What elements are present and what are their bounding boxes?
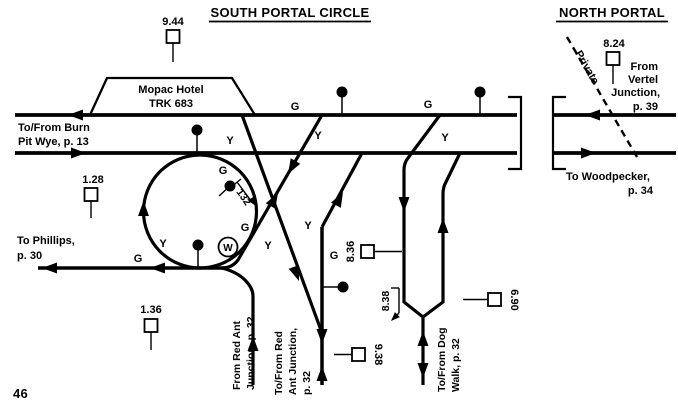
signal-dot-icon bbox=[225, 181, 236, 192]
milepost-square-icon bbox=[352, 348, 365, 361]
milepost-markers: 9.44 1.28 1.36 8.24 8.36 9.38 6.90 8.38 bbox=[82, 16, 625, 365]
flow-arrow-north bbox=[418, 331, 429, 346]
aspect-g-label: G bbox=[330, 250, 339, 262]
flow-arrow-east bbox=[71, 148, 86, 159]
aspect-y-label: Y bbox=[314, 130, 322, 142]
dog-walk-loop-east bbox=[423, 153, 460, 317]
page-number: 46 bbox=[13, 386, 28, 401]
aspect-y-label: Y bbox=[264, 240, 272, 252]
aspect-y-label: Y bbox=[304, 220, 312, 232]
flow-arrow-south bbox=[418, 363, 429, 378]
dog-walk-label: To/From DogWalk, p. 32 bbox=[436, 327, 462, 392]
milepost-square-icon bbox=[85, 188, 98, 201]
signal-dot-icon bbox=[337, 87, 348, 98]
hotel-name-label: Mopac Hotel bbox=[138, 84, 203, 96]
signal-dot-icon bbox=[193, 240, 204, 251]
milepost-label: 8.38 bbox=[380, 291, 392, 312]
private-track-label: Private bbox=[572, 49, 601, 87]
track-end-bracket-south bbox=[508, 97, 521, 169]
milepost-square-icon bbox=[361, 245, 374, 258]
aspect-g-label: G bbox=[424, 99, 433, 111]
aspect-labels: G G G G G G Y Y Y Y Y Y bbox=[134, 99, 450, 265]
milepost-square-icon bbox=[167, 30, 180, 43]
vertel-label-line2: Vertel bbox=[628, 74, 658, 86]
aspect-g-label: G bbox=[241, 222, 250, 234]
flow-arrow-west bbox=[42, 263, 57, 274]
dog-walk-loop-west bbox=[404, 115, 440, 317]
north-portal-title: NORTH PORTAL bbox=[559, 5, 665, 20]
milepost-square-icon bbox=[145, 319, 158, 332]
flow-arrow-west bbox=[585, 110, 600, 121]
milepost-label: 9.44 bbox=[162, 16, 184, 28]
vertel-label-line1: From bbox=[631, 61, 659, 73]
crossover-from-main bbox=[322, 153, 362, 227]
milepost-label: 9.38 bbox=[372, 344, 384, 365]
aspect-y-label: Y bbox=[441, 132, 449, 144]
milepost-square-icon bbox=[488, 293, 501, 306]
flow-arrow-west bbox=[68, 110, 83, 121]
hotel-track-label: TRK 683 bbox=[149, 98, 193, 110]
aspect-g-label: G bbox=[291, 101, 300, 113]
signal-dot-icon bbox=[475, 87, 486, 98]
track-chart-page: SOUTH PORTAL CIRCLE NORTH PORTAL bbox=[0, 0, 678, 411]
burn-pit-label-line1: To/From Burn bbox=[18, 122, 90, 134]
signal-dot-icon bbox=[338, 282, 349, 293]
vertel-label-line3: Junction, bbox=[611, 87, 660, 99]
south-portal-title: SOUTH PORTAL CIRCLE bbox=[210, 5, 369, 20]
flow-arrow-north bbox=[438, 218, 449, 233]
milepost-label: 8.36 bbox=[345, 241, 357, 262]
milepost-square-icon bbox=[607, 52, 620, 65]
burn-pit-label-line2: Pit Wye, p. 13 bbox=[18, 136, 89, 148]
aspect-y-label: Y bbox=[226, 135, 234, 147]
flow-arrow-east bbox=[581, 148, 596, 159]
aspect-g-label: G bbox=[219, 165, 228, 177]
balloon-loop-track bbox=[144, 155, 257, 268]
flow-arrow-south bbox=[399, 197, 410, 212]
flow-arrow-diag bbox=[283, 158, 300, 176]
flow-arrow-north bbox=[317, 366, 328, 381]
whistle-sign-letter: W bbox=[223, 243, 233, 254]
track-end-bracket-north bbox=[553, 97, 566, 169]
flow-arrow-west bbox=[150, 263, 165, 274]
phillips-label-line2: p. 30 bbox=[17, 250, 42, 262]
track-diagram: SOUTH PORTAL CIRCLE NORTH PORTAL bbox=[0, 0, 678, 411]
milepost-label: 8.24 bbox=[603, 38, 625, 50]
flow-arrow-south bbox=[317, 329, 328, 344]
whistle-sign: W bbox=[219, 238, 238, 257]
milepost-pointer-838: 8.38 bbox=[380, 288, 400, 323]
aspect-g-label: G bbox=[134, 253, 143, 265]
tofrom-red-ant-label: To/From RedAnt Junction,p. 32 bbox=[273, 328, 313, 395]
milepost-label: 1.28 bbox=[82, 174, 103, 186]
woodpecker-label-line2: p. 34 bbox=[628, 185, 654, 197]
woodpecker-label-line1: To Woodpecker, bbox=[566, 171, 650, 183]
vertel-label-line4: p. 39 bbox=[633, 101, 658, 113]
from-red-ant-label: From Red AntJunction, p. 32 bbox=[231, 316, 257, 390]
milepost-label: 1.36 bbox=[140, 304, 161, 316]
milepost-label: 6.90 bbox=[508, 289, 520, 310]
flow-arrow-loop bbox=[138, 201, 149, 216]
aspect-y-label: Y bbox=[159, 238, 167, 250]
signal-dot-icon bbox=[192, 125, 203, 136]
phillips-label-line1: To Phillips, bbox=[17, 235, 75, 247]
